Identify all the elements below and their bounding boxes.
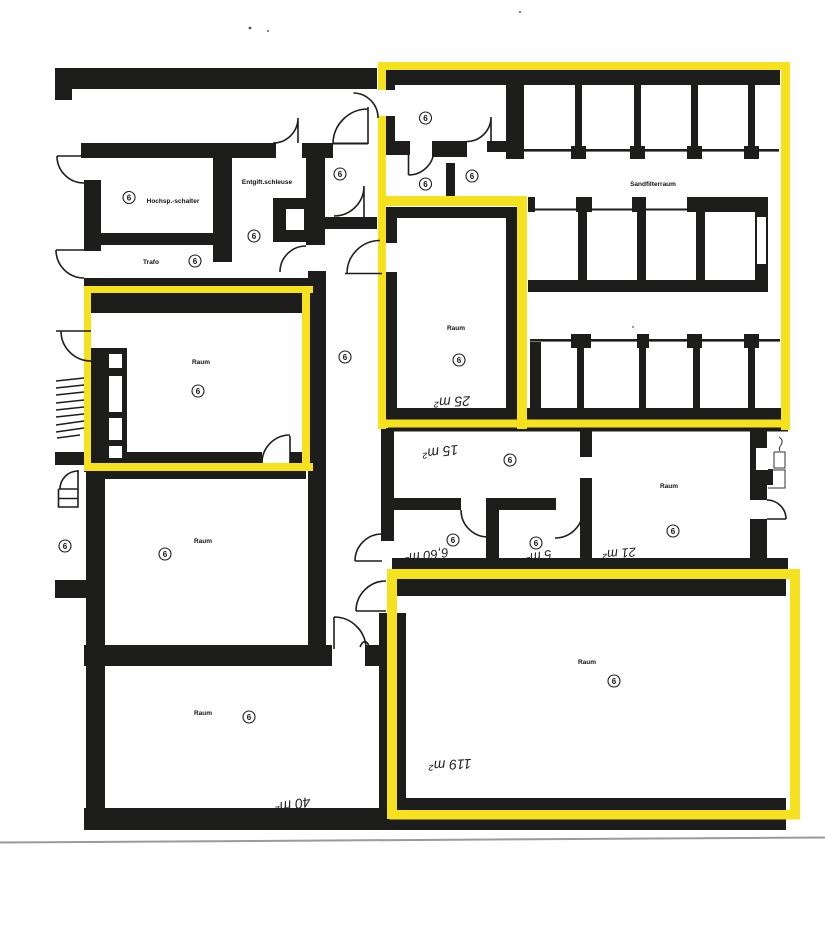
svg-text:6: 6 xyxy=(534,539,539,548)
svg-text:6: 6 xyxy=(457,356,462,365)
svg-text:6: 6 xyxy=(338,170,343,179)
svg-text:6: 6 xyxy=(193,257,198,266)
svg-text:Trafo: Trafo xyxy=(143,259,159,266)
svg-text:6: 6 xyxy=(247,713,252,722)
svg-text:6: 6 xyxy=(163,550,168,559)
svg-text:6: 6 xyxy=(470,172,475,181)
svg-text:6: 6 xyxy=(423,180,428,189)
svg-text:25 m²: 25 m² xyxy=(433,393,472,411)
svg-text:Raum: Raum xyxy=(447,325,465,332)
svg-text:Raum: Raum xyxy=(194,710,212,717)
svg-text:6: 6 xyxy=(63,542,68,551)
svg-text:Raum: Raum xyxy=(578,659,596,666)
svg-text:Raum: Raum xyxy=(194,538,212,545)
svg-text:6: 6 xyxy=(423,114,428,123)
svg-text:Hochsp.-schalter: Hochsp.-schalter xyxy=(147,198,200,205)
svg-text:6: 6 xyxy=(196,387,201,396)
svg-text:6: 6 xyxy=(671,527,676,536)
svg-text:6: 6 xyxy=(451,536,456,545)
svg-text:Raum: Raum xyxy=(192,359,210,366)
svg-text:Sandfilterraum: Sandfilterraum xyxy=(630,181,676,188)
svg-text:Entgift.schleuse: Entgift.schleuse xyxy=(242,179,293,186)
svg-text:6: 6 xyxy=(612,677,617,686)
svg-text:Raum: Raum xyxy=(660,483,678,490)
svg-text:6: 6 xyxy=(127,193,132,202)
svg-text:6: 6 xyxy=(508,456,513,465)
svg-text:6: 6 xyxy=(252,232,257,241)
svg-text:6: 6 xyxy=(343,353,348,362)
svg-text:119 m²: 119 m² xyxy=(427,756,472,774)
svg-text:21 m²: 21 m² xyxy=(602,544,638,562)
